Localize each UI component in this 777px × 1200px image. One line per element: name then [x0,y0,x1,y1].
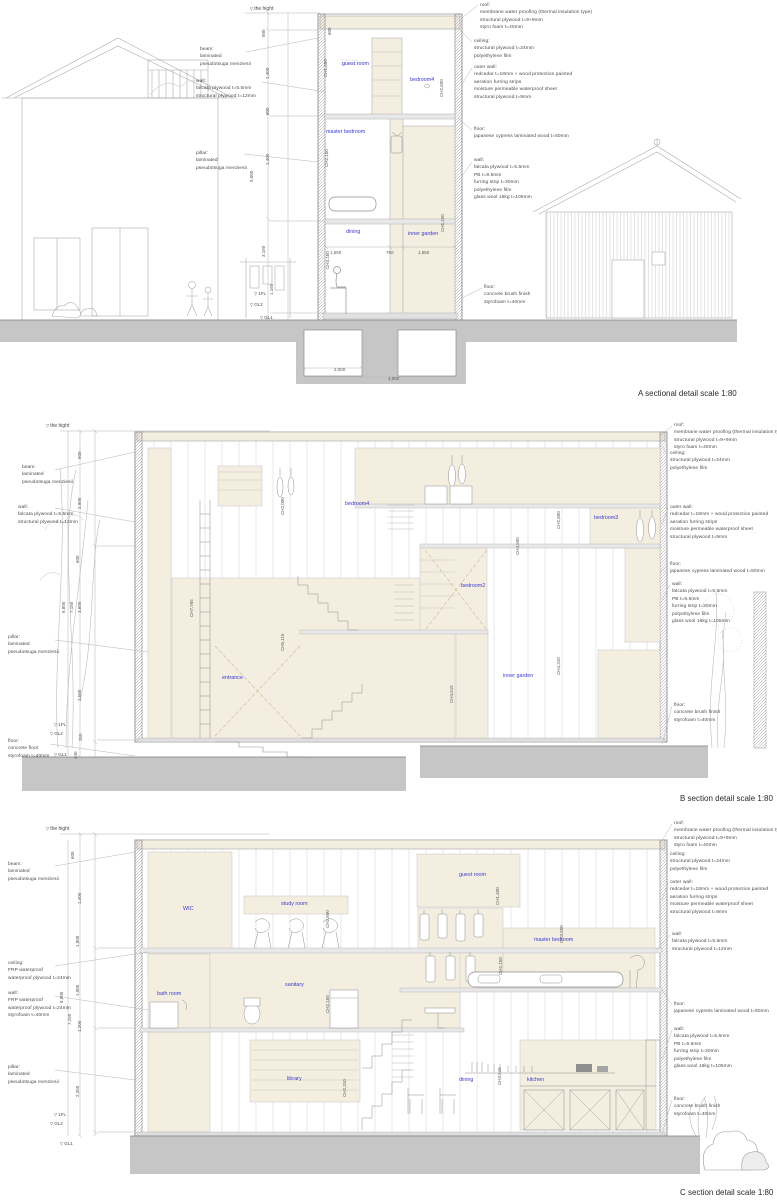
section-a-ground [0,320,737,384]
section-a-neighbor-house-right [533,139,741,318]
drawing-canvas: the hightbeam: laminated pseudotsuga men… [0,0,777,1200]
section-c-ground [130,1136,700,1174]
section-c-building [135,840,667,1136]
section-a-neighbor-house-left [2,38,296,320]
drawing-linework [0,0,777,1200]
section-c-rocks-and-plants [690,1096,769,1170]
section-b-ground [22,742,708,791]
section-a-tower [318,14,462,322]
section-b-building [135,432,667,742]
